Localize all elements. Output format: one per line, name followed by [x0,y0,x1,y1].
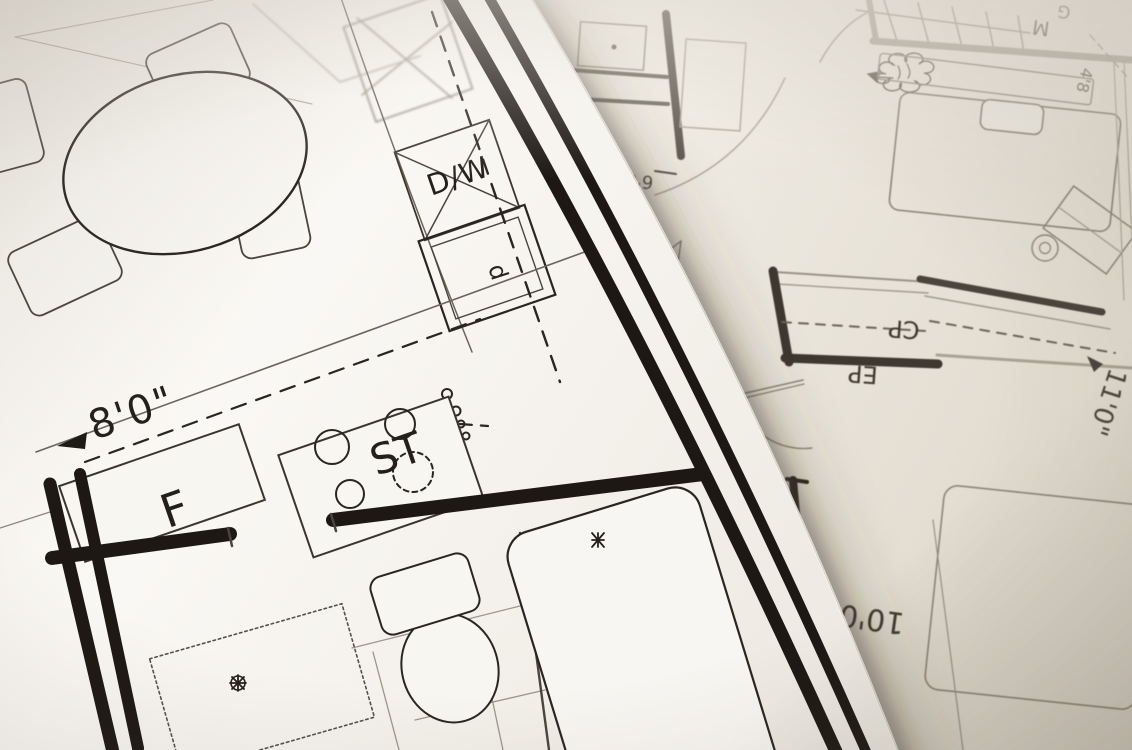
room-letter-g: G [1056,0,1072,22]
entry-ep-label: EP [847,359,879,389]
closet-cp-label: CP [887,314,920,344]
drain-symbol [230,675,246,691]
drain-symbol [592,533,604,547]
ceiling-fixture-dot [612,45,617,50]
blanket-fold [980,99,1045,135]
room-letter-m: M [1031,15,1051,41]
blueprint-photo: 6'0 [0,0,1132,750]
blueprint-canvas: 6'0 [0,0,1132,750]
